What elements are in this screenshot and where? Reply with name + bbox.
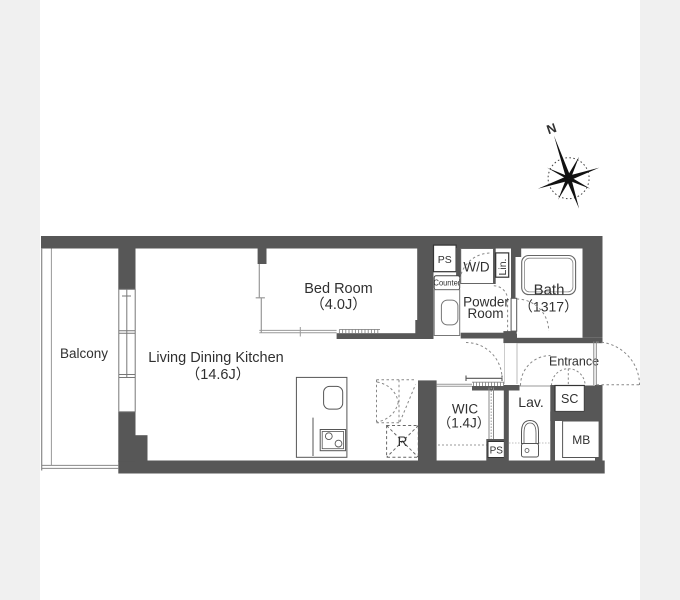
- svg-text:WIC: WIC: [452, 402, 478, 417]
- svg-text:（4.0J）: （4.0J）: [310, 296, 366, 313]
- svg-text:SC: SC: [561, 392, 578, 406]
- svg-text:MB: MB: [572, 433, 590, 447]
- svg-text:Bath: Bath: [534, 281, 565, 298]
- svg-text:Lin.: Lin.: [497, 259, 509, 276]
- svg-text:W/D: W/D: [463, 260, 489, 275]
- svg-text:PS: PS: [438, 254, 452, 266]
- svg-text:（1.4J）: （1.4J）: [438, 416, 491, 431]
- svg-text:Entrance: Entrance: [549, 355, 599, 369]
- svg-text:PS: PS: [490, 446, 504, 457]
- svg-text:Counter: Counter: [434, 278, 461, 287]
- svg-text:Room: Room: [467, 306, 503, 321]
- svg-text:R: R: [398, 434, 408, 449]
- svg-text:（14.6J）: （14.6J）: [186, 366, 250, 383]
- svg-text:Lav.: Lav.: [518, 394, 543, 410]
- svg-text:Balcony: Balcony: [60, 346, 108, 361]
- svg-text:Living Dining Kitchen: Living Dining Kitchen: [148, 350, 283, 366]
- svg-text:Bed Room: Bed Room: [304, 281, 373, 297]
